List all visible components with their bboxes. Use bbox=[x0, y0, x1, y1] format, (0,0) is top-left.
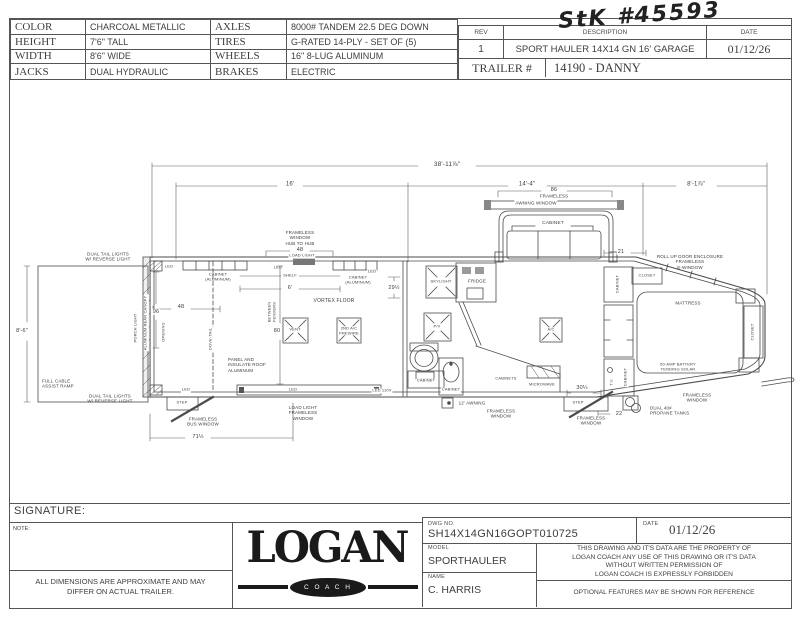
gooseneck-cap bbox=[484, 200, 624, 262]
logo-box: LOGAN C O A C H bbox=[232, 522, 422, 608]
title-block-left: MODEL SPORTHAULER NAME C. HARRIS bbox=[423, 543, 537, 607]
note-box: NOTE: ALL DIMENSIONS ARE APPROXIMATE AND… bbox=[9, 522, 233, 608]
dwg-no-value: SH14X14GN16GOPT010725 bbox=[428, 528, 578, 540]
footer-divider bbox=[9, 503, 790, 504]
title-block: DWG NO. SH14X14GN16GOPT010725 DATE 01/12… bbox=[422, 517, 791, 607]
logo-bar-right bbox=[368, 585, 418, 589]
date-label: DATE bbox=[643, 521, 658, 527]
kitchen-counter bbox=[476, 346, 560, 392]
title-block-row1: DWG NO. SH14X14GN16GOPT010725 DATE 01/12… bbox=[423, 518, 791, 544]
logan-logo: LOGAN bbox=[228, 522, 426, 573]
name-cell: NAME C. HARRIS bbox=[423, 572, 536, 607]
date-cell: DATE 01/12/26 bbox=[636, 518, 791, 543]
model-value: SPORTHAULER bbox=[428, 555, 507, 567]
rear-ramp bbox=[38, 266, 148, 402]
name-label: NAME bbox=[428, 574, 445, 580]
note-label: NOTE: bbox=[13, 526, 30, 532]
optional-features-note: OPTIONAL FEATURES MAY BE SHOWN FOR REFER… bbox=[537, 578, 791, 607]
dimensions-disclaimer: ALL DIMENSIONS ARE APPROXIMATE AND MAY D… bbox=[9, 570, 232, 597]
dwg-cell: DWG NO. SH14X14GN16GOPT010725 bbox=[423, 518, 636, 543]
coach-logo-oval: C O A C H bbox=[290, 578, 366, 597]
signature-label: SIGNATURE: bbox=[14, 505, 85, 517]
model-label: MODEL bbox=[428, 545, 449, 551]
name-value: C. HARRIS bbox=[428, 584, 481, 596]
model-cell: MODEL SPORTHAULER bbox=[423, 543, 536, 573]
dwg-no-label: DWG NO. bbox=[428, 521, 455, 527]
dimension-lines bbox=[24, 163, 767, 441]
bath-walls bbox=[403, 261, 481, 396]
trailer-outline bbox=[150, 257, 765, 397]
legal-notice: THIS DRAWING AND IT'S DATA ARE THE PROPE… bbox=[537, 543, 791, 581]
rear-canopy bbox=[143, 257, 150, 397]
drawing-sheet: COLOR CHARCOAL METALLIC AXLES 8000# TAND… bbox=[0, 0, 800, 618]
date-value: 01/12/26 bbox=[669, 522, 715, 538]
logo-bar-left bbox=[238, 585, 288, 589]
